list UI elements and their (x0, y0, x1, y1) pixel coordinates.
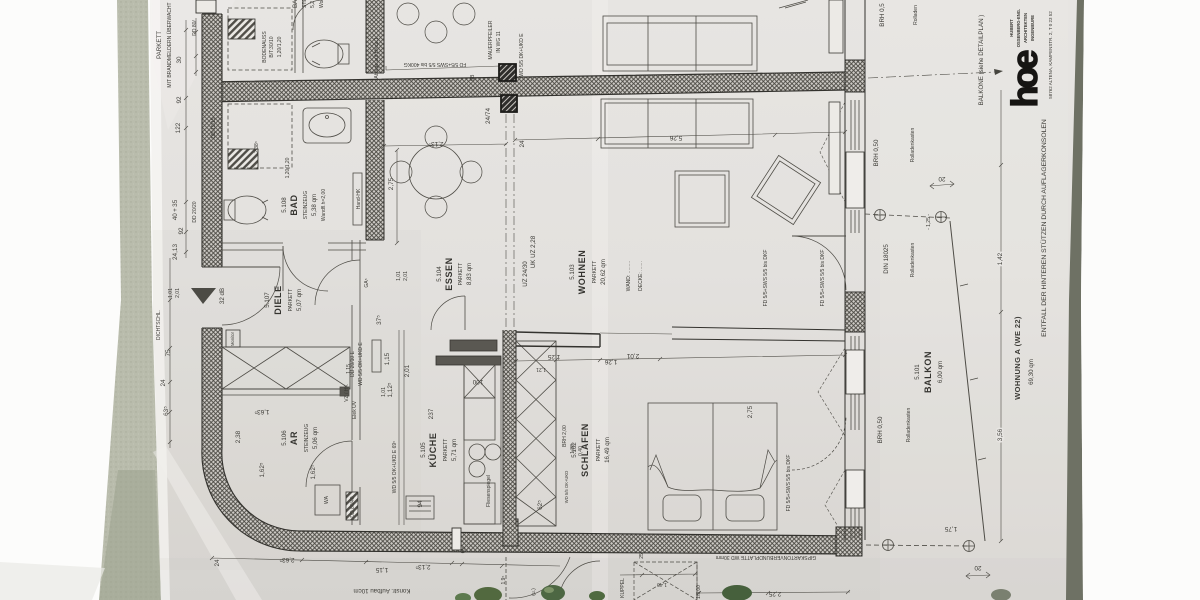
svg-text:AR: AR (289, 431, 299, 445)
svg-text:WA: WA (324, 495, 330, 504)
svg-text:5.103: 5.103 (569, 264, 576, 280)
svg-text:20: 20 (974, 564, 982, 571)
svg-text:2,25: 2,25 (768, 590, 781, 597)
svg-text:Fliesenspiegel: Fliesenspiegel (486, 475, 492, 507)
svg-text:DD 20/20: DD 20/20 (192, 201, 198, 222)
svg-text:IN WG 11: IN WG 11 (496, 31, 502, 53)
svg-text:20: 20 (938, 175, 946, 182)
svg-text:DIN 18025: DIN 18025 (883, 244, 890, 274)
svg-text:DD 15/15: DD 15/15 (211, 117, 217, 138)
svg-text:2,75: 2,75 (388, 177, 395, 190)
svg-text:STEINZEUG: STEINZEUG (303, 191, 309, 220)
svg-text:63⁵: 63⁵ (163, 406, 170, 416)
svg-text:8,83 qm: 8,83 qm (466, 263, 473, 285)
svg-text:Rolladenkasten: Rolladenkasten (910, 243, 916, 278)
svg-text:MIT BRANDMELDERN ÜBERWACHT: MIT BRANDMELDERN ÜBERWACHT (166, 2, 173, 87)
svg-text:94: 94 (417, 500, 424, 508)
svg-text:WAND: .........: WAND: ......... (626, 261, 632, 291)
svg-text:INGENIEURE: INGENIEURE (1030, 15, 1035, 41)
svg-text:PARKETT: PARKETT (288, 289, 294, 312)
svg-text:GIPSKARTONVERBUNDPLATTE WD 30: GIPSKARTONVERBUNDPLATTE WD 30mm (716, 554, 817, 560)
svg-text:1,9⁵: 1,9⁵ (501, 575, 507, 584)
svg-text:ENTFALL DER HINTEREN STÜTZEN D: ENTFALL DER HINTEREN STÜTZEN DURCH AUFLA… (1040, 119, 1048, 337)
svg-text:BALKONE (siehe DETAILPLAN ): BALKONE (siehe DETAILPLAN ) (978, 15, 985, 106)
svg-text:BRH 0,50: BRH 0,50 (877, 416, 884, 443)
svg-text:WOHNEN: WOHNEN (577, 250, 587, 295)
svg-text:1,15: 1,15 (375, 566, 388, 573)
svg-text:5.105: 5.105 (420, 442, 427, 458)
svg-text:24: 24 (160, 379, 167, 387)
svg-text:PARKETT: PARKETT (592, 261, 598, 284)
svg-text:75: 75 (165, 349, 172, 357)
svg-text:OSSENBERG-ENG.: OSSENBERG-ENG. (1016, 9, 1021, 47)
svg-text:ESSEN: ESSEN (444, 257, 454, 291)
svg-text:BODENAUSS: BODENAUSS (262, 31, 268, 63)
svg-text:2,01: 2,01 (626, 352, 639, 359)
svg-text:24/74: 24/74 (485, 108, 492, 124)
svg-text:DD 80/: DD 80/ (192, 20, 198, 36)
svg-text:GA⁵: GA⁵ (364, 278, 370, 287)
svg-text:2,01: 2,01 (404, 364, 411, 377)
svg-text:B/T:30/10: B/T:30/10 (269, 36, 275, 57)
svg-text:Hand-HK: Hand-HK (356, 188, 362, 209)
svg-text:1,01: 1,01 (396, 271, 402, 281)
svg-text:1,15: 1,15 (384, 352, 391, 365)
svg-text:2,01: 2,01 (403, 271, 409, 281)
svg-text:PARKETT: PARKETT (156, 31, 163, 59)
svg-text:KUPPEL: KUPPEL (620, 578, 626, 598)
svg-text:UZ 24/30: UZ 24/30 (522, 261, 529, 287)
svg-text:1,88: 1,88 (570, 444, 576, 454)
svg-text:69,30 qm: 69,30 qm (1028, 359, 1035, 385)
svg-text:BRH 0,50: BRH 0,50 (873, 139, 880, 166)
svg-text:DIELE: DIELE (273, 285, 283, 315)
svg-text:2,75: 2,75 (747, 405, 754, 418)
svg-text:- 1,25 -: - 1,25 - (926, 214, 932, 230)
svg-text:5,07 qm: 5,07 qm (296, 289, 303, 311)
svg-text:1,62⁵: 1,62⁵ (259, 462, 266, 477)
svg-text:Rolladenkasten: Rolladenkasten (910, 128, 916, 163)
svg-text:5,26: 5,26 (669, 134, 682, 141)
svg-text:37⁵: 37⁵ (376, 315, 383, 325)
svg-text:1,20/1,20: 1,20/1,20 (277, 36, 283, 57)
svg-text:2,13⁵: 2,13⁵ (415, 563, 430, 570)
svg-text:KÜCHE: KÜCHE (428, 432, 438, 467)
svg-text:1,40: 1,40 (657, 581, 667, 587)
svg-text:1,25: 1,25 (547, 353, 560, 360)
svg-text:62⁵: 62⁵ (537, 500, 544, 510)
svg-text:92: 92 (176, 96, 183, 104)
svg-text:24: 24 (214, 559, 221, 567)
svg-text:32 dB: 32 dB (219, 288, 226, 304)
svg-text:5,2: 5,2 (310, 1, 316, 8)
svg-text:Elek UV: Elek UV (352, 400, 358, 419)
svg-text:FD 5/5+SWS 5/5 bis DKF: FD 5/5+SWS 5/5 bis DKF (786, 455, 792, 512)
svg-text:PARKETT: PARKETT (596, 439, 602, 462)
svg-text:Monitor: Monitor (230, 331, 235, 346)
svg-text:0,40: 0,40 (578, 446, 584, 456)
svg-text:1,75: 1,75 (944, 525, 957, 532)
svg-text:HUBERT: HUBERT (1009, 19, 1014, 37)
svg-text:5,71 qm: 5,71 qm (451, 439, 458, 461)
svg-text:1,42: 1,42 (997, 252, 1004, 265)
svg-text:1,01: 1,01 (381, 387, 387, 397)
svg-text:6,00 qm: 6,00 qm (937, 361, 944, 383)
svg-text:65: 65 (460, 546, 467, 554)
svg-text:UK UZ 2,28: UK UZ 2,28 (530, 235, 537, 268)
svg-text:5.101: 5.101 (914, 364, 921, 380)
svg-text:1,63⁵: 1,63⁵ (254, 408, 269, 415)
svg-text:1,01: 1,01 (168, 288, 174, 298)
svg-text:30: 30 (176, 56, 183, 64)
svg-text:FD 5/5+SWS 5/5 bis 400KG: FD 5/5+SWS 5/5 bis 400KG (404, 61, 467, 67)
svg-text:237: 237 (428, 408, 435, 419)
svg-text:1,26: 1,26 (604, 358, 617, 365)
svg-text:122: 122 (175, 122, 182, 133)
svg-text:2,38: 2,38 (235, 430, 242, 443)
svg-text:5,38 qm: 5,38 qm (311, 194, 318, 216)
svg-text:BRH 0,5: BRH 0,5 (879, 3, 886, 27)
svg-text:Wandfl.h=2,00: Wandfl.h=2,00 (321, 189, 327, 221)
svg-text:BALKON: BALKON (923, 351, 933, 393)
svg-text:(u.): (u.) (531, 588, 537, 596)
svg-text:1,62⁵: 1,62⁵ (310, 464, 317, 479)
svg-text:5,06 qm: 5,06 qm (312, 427, 319, 449)
svg-text:STE: STE (302, 0, 308, 8)
svg-text:WD 5/5 OK+UKD E: WD 5/5 OK+UKD E (358, 342, 364, 386)
svg-text:92: 92 (178, 227, 185, 235)
svg-text:BRH 2,00: BRH 2,00 (562, 425, 568, 447)
svg-text:WD 5/5 OK+UKD E 69⁵: WD 5/5 OK+UKD E 69⁵ (392, 441, 398, 494)
svg-text:24: 24 (519, 140, 526, 148)
svg-text:WOHNUNG A (WE 22): WOHNUNG A (WE 22) (1013, 316, 1022, 400)
svg-text:Ablage auf H=ca.1: Ablage auf H=ca.1 (374, 37, 380, 78)
svg-text:2,63⁵: 2,63⁵ (279, 556, 294, 563)
svg-text:5.104: 5.104 (436, 266, 443, 282)
svg-text:5.107: 5.107 (264, 292, 271, 308)
svg-text:25: 25 (639, 553, 645, 559)
svg-text:ARCHITEKTEN: ARCHITEKTEN (1023, 13, 1028, 43)
svg-text:PARKETT: PARKETT (458, 263, 464, 286)
svg-text:Konstr. Aufbau 10cm: Konstr. Aufbau 10cm (353, 587, 410, 594)
svg-text:WD 5/5 OK+UKD: WD 5/5 OK+UKD (564, 471, 569, 503)
svg-text:2,38⁵: 2,38⁵ (254, 141, 260, 153)
svg-text:WD 5/5 DK+UKD E: WD 5/5 DK+UKD E (519, 33, 525, 77)
svg-text:3,56: 3,56 (997, 428, 1004, 441)
svg-text:PARKETT: PARKETT (443, 439, 449, 462)
svg-text:BA: BA (292, 0, 299, 8)
svg-text:1/5,00: 1/5,00 (696, 585, 702, 599)
svg-text:24,13: 24,13 (172, 244, 179, 260)
svg-text:100: 100 (472, 378, 483, 385)
svg-text:58762 ALTENA, KAMPENSTR. 2, T: 58762 ALTENA, KAMPENSTR. 2, T 0 23 52 (1048, 11, 1053, 99)
svg-text:20,62 qm: 20,62 qm (600, 259, 607, 285)
svg-text:1,20/1,20: 1,20/1,20 (285, 157, 291, 178)
svg-text:MAUERPFEILER: MAUERPFEILER (488, 20, 494, 59)
svg-text:1,21: 1,21 (536, 366, 546, 372)
svg-text:SB: SB (470, 74, 476, 81)
svg-text:FD 5/5+SWS 5/5 bis DKF: FD 5/5+SWS 5/5 bis DKF (763, 250, 769, 307)
svg-text:5.108: 5.108 (281, 197, 288, 213)
svg-text:16,49 qm: 16,49 qm (604, 437, 611, 463)
svg-text:Wor: Wor (319, 0, 325, 8)
svg-text:1,12⁵: 1,12⁵ (387, 382, 394, 397)
svg-text:DD 80/40: DD 80/40 (350, 496, 356, 517)
svg-text:2,01: 2,01 (175, 288, 181, 298)
svg-text:Rolladenkasten: Rolladenkasten (906, 408, 912, 443)
svg-text:DD 20/10 E: DD 20/10 E (350, 350, 356, 377)
svg-text:BAD: BAD (289, 194, 299, 215)
svg-text:Rolladen: Rolladen (913, 5, 919, 25)
svg-text:2,13⁵: 2,13⁵ (428, 140, 443, 147)
svg-text:DECKE: .......: DECKE: ....... (638, 261, 644, 291)
svg-text:VZ / HK: VZ / HK (344, 384, 350, 402)
svg-text:5.106: 5.106 (281, 430, 288, 446)
svg-text:FD 5/5+SWS 5/5 bis DKF: FD 5/5+SWS 5/5 bis DKF (820, 250, 826, 307)
svg-text:hoe: hoe (1004, 51, 1045, 108)
svg-text:DICHTSCHL.: DICHTSCHL. (156, 310, 162, 340)
svg-text:STEINZEUG: STEINZEUG (304, 424, 310, 453)
svg-text:40 + 35: 40 + 35 (172, 199, 179, 220)
